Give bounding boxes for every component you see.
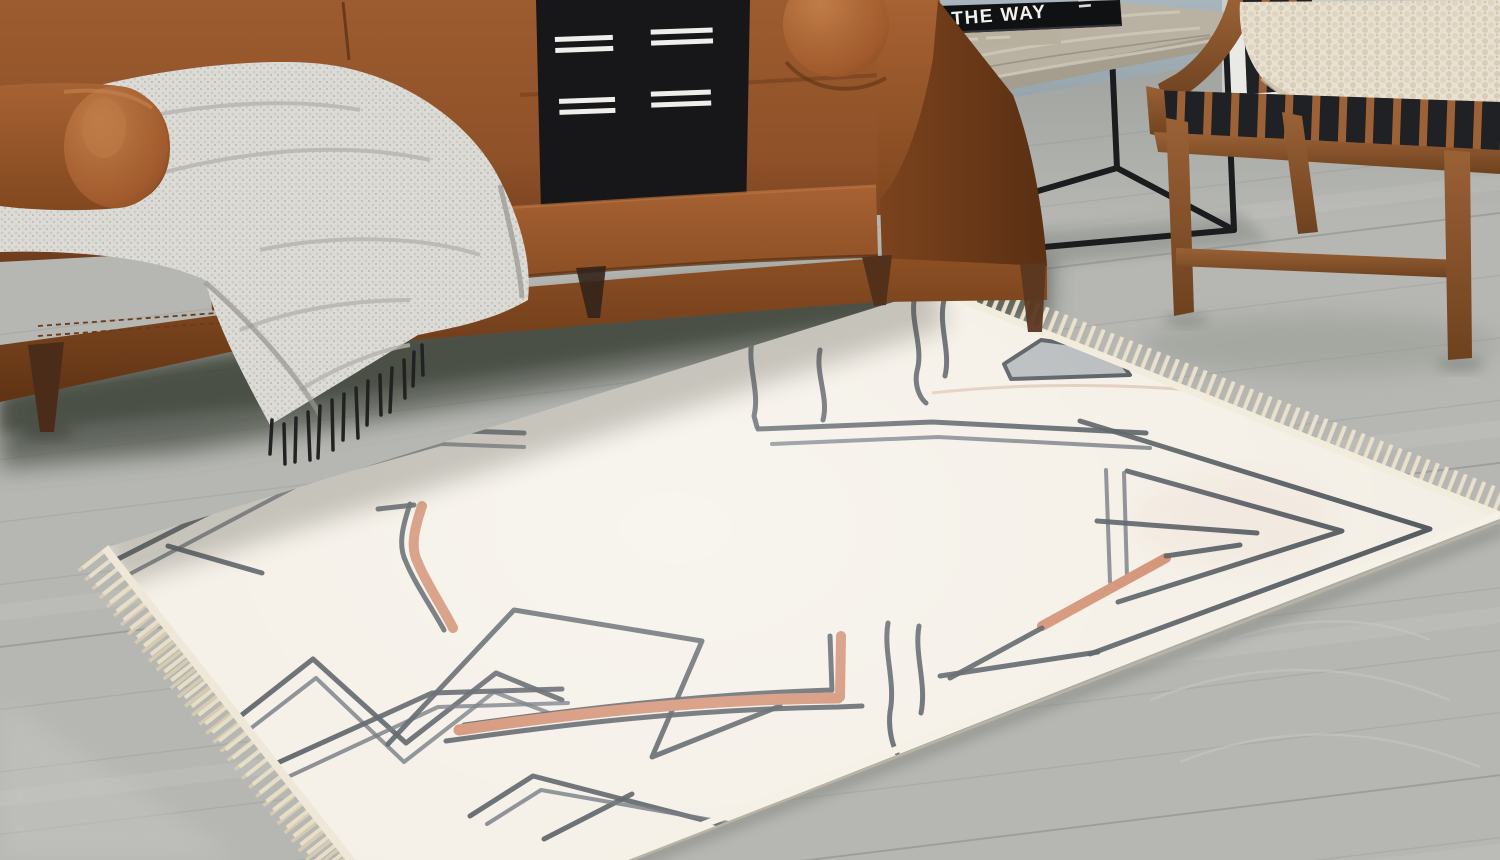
scene-canvas: THE WAY bbox=[0, 0, 1500, 860]
living-room-photo: THE WAY bbox=[0, 0, 1500, 860]
bolster-pillow-left bbox=[0, 83, 170, 210]
